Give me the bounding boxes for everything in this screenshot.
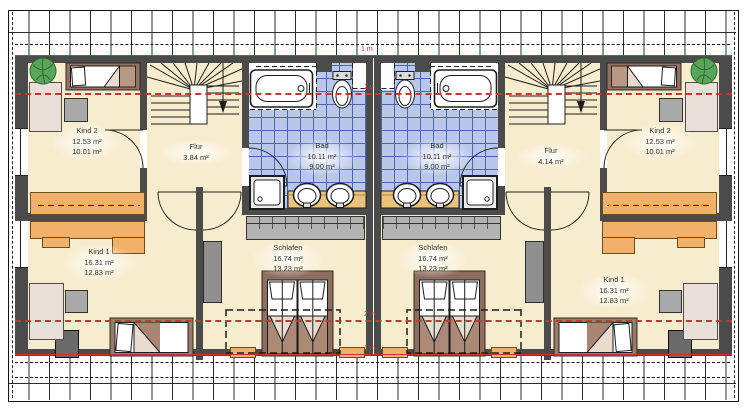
wall-step-bad: [415, 63, 431, 72]
wall-kind2-flur-upper: [600, 63, 607, 130]
dresser-kind1: [683, 283, 718, 340]
height-label-1m-top: 1 m: [361, 46, 373, 54]
nightstand-right: [382, 347, 408, 358]
closet-schlafen: [382, 216, 501, 240]
desk-kind2: [602, 192, 717, 215]
floor-plan: Kind 2 12.53 m² 10.01 m² Kind 1 16.31 m²…: [0, 0, 747, 416]
bathtub-nook: [431, 63, 498, 110]
toilet-nook: [381, 63, 394, 90]
room-label-kind1: Kind 1 16.31 m² 12.83 m²: [579, 273, 649, 309]
desk-chair-kind1-a: [677, 237, 705, 248]
height-label-1m-bottom: 1 m: [364, 345, 376, 353]
eaves-wall-top: [373, 56, 732, 63]
height-line-1m-top: [15, 55, 732, 56]
nightstand-left: [491, 347, 517, 358]
height-line-2m-bottom: [15, 320, 732, 322]
wall-kind1-schlafen: [544, 187, 551, 360]
party-wall-gap: [373, 58, 374, 354]
wall-bad-schlafen: [381, 208, 505, 215]
window-kind2: [719, 128, 732, 176]
room-label-schlafen: Schlafen 16.74 m² 13.23 m²: [398, 241, 468, 277]
height-line-2m-top: [15, 93, 732, 95]
height-label-2m-top: 2 m: [364, 84, 376, 92]
window-kind1: [719, 216, 732, 268]
side-table-kind1: [659, 290, 682, 313]
height-line-1m-bottom: [15, 354, 732, 355]
room-label-bad: Bad 10.11 m² 9.00 m²: [402, 139, 472, 175]
room-kind1-floor-nook: [551, 192, 600, 349]
gable-wall: [719, 56, 732, 356]
staircase: [505, 63, 600, 150]
side-table-kind2: [659, 98, 683, 122]
height-label-2m-bottom: 2 m: [364, 311, 376, 319]
room-label-flur: Flur 4.14 m²: [516, 144, 586, 169]
desk-chair-kind1-b: [602, 237, 635, 254]
wardrobe-schlafen: [525, 241, 544, 303]
room-label-kind2: Kind 2 12.53 m² 10.01 m²: [625, 124, 695, 160]
wall-flur-bad-upper: [498, 63, 505, 148]
